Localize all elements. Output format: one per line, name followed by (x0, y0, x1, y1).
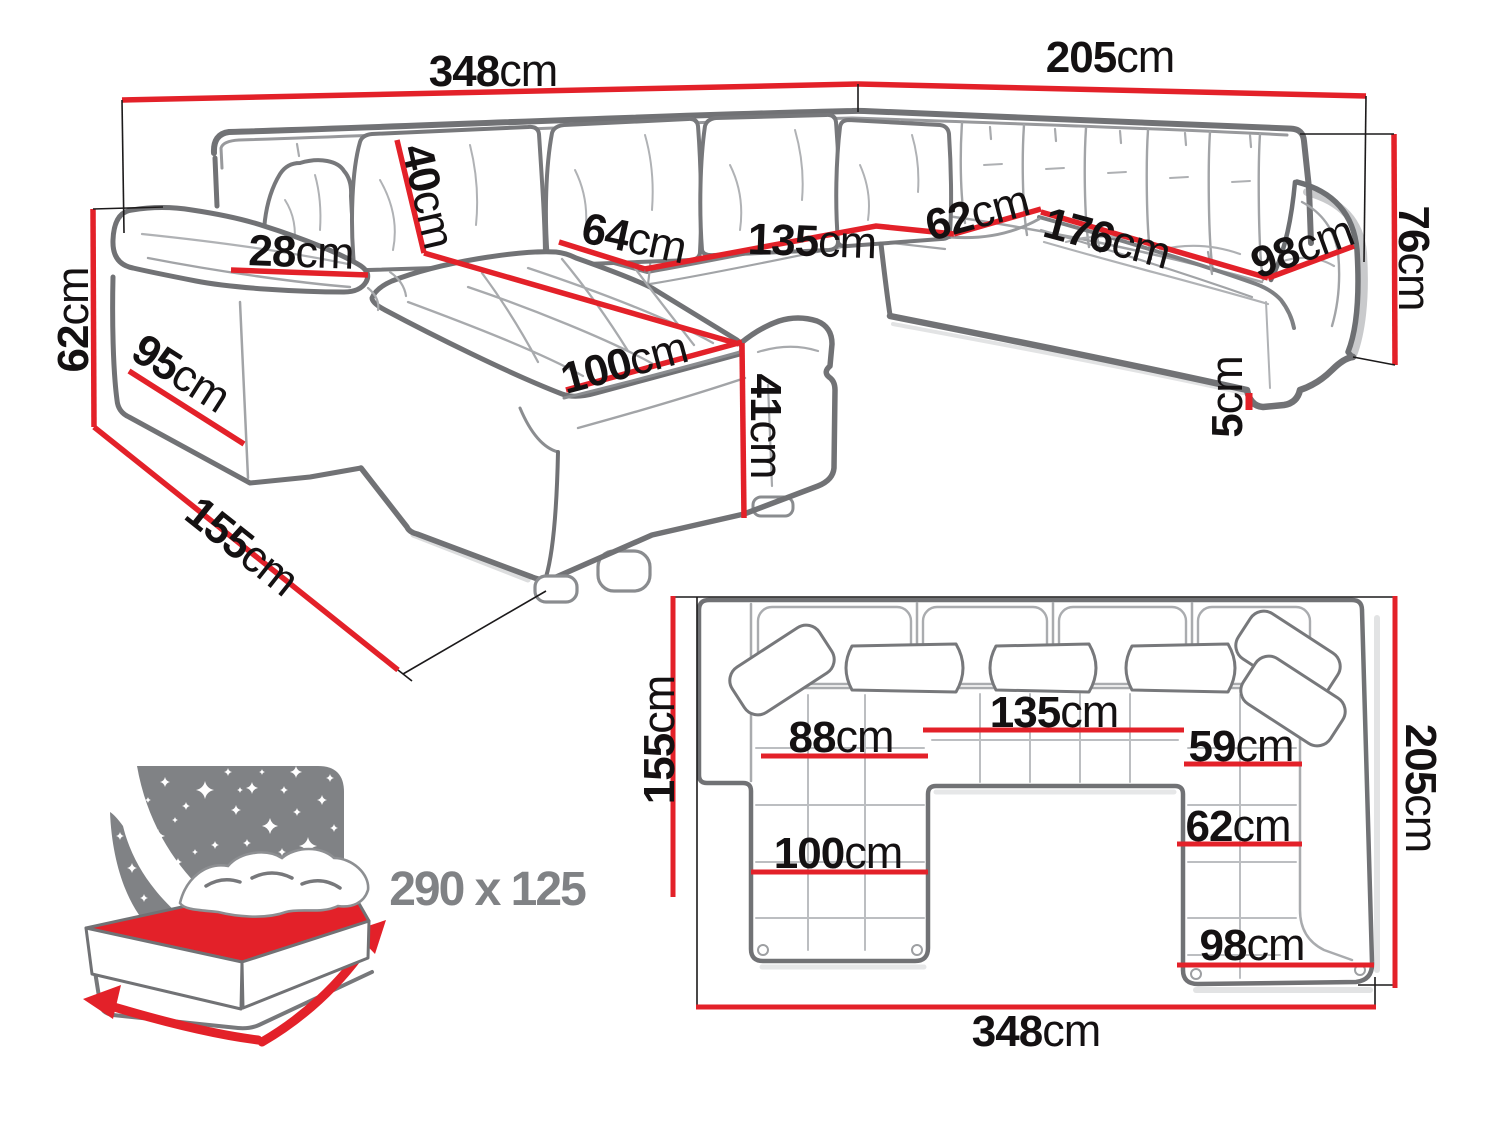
svg-text:205cm: 205cm (1396, 724, 1447, 852)
svg-text:135cm: 135cm (747, 213, 877, 268)
svg-text:100cm: 100cm (774, 827, 902, 878)
svg-text:135cm: 135cm (990, 686, 1118, 737)
svg-text:98cm: 98cm (1200, 919, 1305, 970)
svg-text:59cm: 59cm (1189, 720, 1294, 771)
svg-text:62cm: 62cm (1186, 800, 1291, 851)
svg-text:205cm: 205cm (1046, 31, 1174, 82)
svg-text:155cm: 155cm (633, 676, 684, 804)
svg-text:348cm: 348cm (429, 45, 557, 96)
svg-text:5cm: 5cm (1201, 356, 1252, 437)
svg-text:290 x 125: 290 x 125 (389, 863, 586, 916)
svg-text:62cm: 62cm (47, 268, 98, 373)
svg-text:348cm: 348cm (972, 1005, 1100, 1056)
svg-text:88cm: 88cm (789, 711, 894, 762)
svg-text:76cm: 76cm (1389, 206, 1440, 311)
svg-text:28cm: 28cm (248, 224, 355, 279)
svg-text:41cm: 41cm (741, 374, 792, 479)
